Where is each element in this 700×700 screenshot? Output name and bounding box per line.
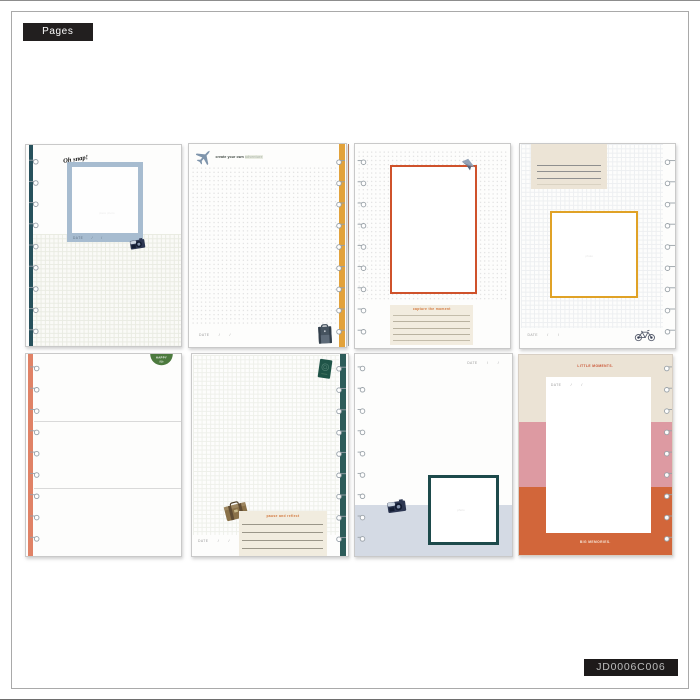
svg-text:life: life [159, 360, 164, 364]
